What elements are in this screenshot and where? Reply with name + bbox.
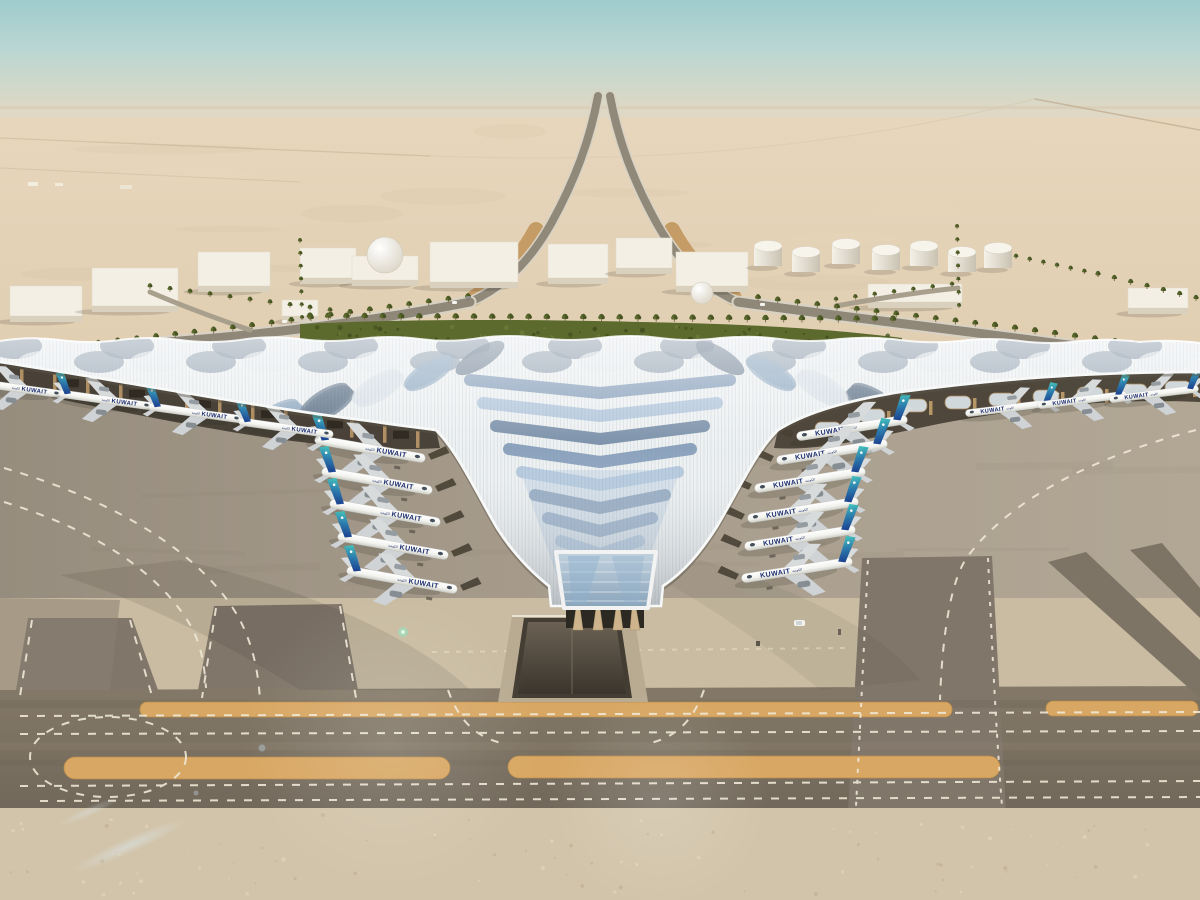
palm-crown	[228, 295, 231, 298]
sand-speckle	[26, 870, 29, 873]
sand-speckle	[942, 879, 944, 881]
sand-speckle	[139, 879, 143, 883]
palm-crown	[288, 319, 291, 322]
sand-speckle	[875, 832, 877, 834]
sand-speckle	[814, 892, 818, 896]
palm-crown	[959, 291, 961, 293]
palm-crown	[150, 285, 153, 288]
palm-crown	[814, 303, 817, 306]
hedge-texture	[579, 331, 581, 333]
hedge-texture	[568, 332, 573, 337]
palm-crown	[1030, 258, 1032, 260]
palm-crown	[795, 301, 798, 304]
palm-crown	[1068, 267, 1070, 269]
palm-crown	[301, 265, 303, 267]
sand-speckle	[833, 828, 835, 830]
palm-crown	[272, 321, 275, 324]
palm-crown	[565, 316, 568, 319]
palm-crown	[298, 239, 300, 241]
palm-crown	[230, 295, 233, 298]
palm-crown	[674, 316, 677, 319]
palm-crown	[389, 305, 392, 308]
palm-crown	[1147, 284, 1150, 287]
hedge-texture	[520, 330, 525, 335]
palm-crown	[780, 317, 783, 320]
palm-crown	[471, 315, 474, 318]
palm-crown	[474, 315, 477, 318]
hedge-texture	[684, 327, 687, 330]
palm-crown	[507, 315, 510, 318]
sand-speckle	[20, 822, 23, 825]
palm-crown	[529, 315, 532, 318]
sand-speckle	[1063, 847, 1065, 849]
palm-crown	[409, 303, 412, 306]
palm-crown	[383, 315, 386, 318]
sand-speckle	[971, 866, 973, 868]
palm-crown	[755, 296, 758, 299]
palm-crown	[489, 315, 492, 318]
palm-crown	[620, 316, 623, 319]
palm-crown	[872, 293, 874, 295]
palm-crown	[148, 285, 151, 288]
palm-crown	[1052, 332, 1055, 335]
desert-patch	[175, 226, 282, 233]
palm-crown	[1027, 258, 1029, 260]
sand-speckle	[136, 872, 138, 874]
palm-crown	[911, 288, 913, 290]
hedge-texture	[597, 334, 600, 337]
palm-crown	[416, 315, 419, 318]
palm-crown	[301, 291, 303, 293]
palm-crown	[190, 290, 193, 293]
palm-crown	[1057, 264, 1059, 266]
palm-crown	[401, 315, 404, 318]
desert-patch	[380, 188, 506, 205]
palm-crown	[406, 303, 409, 306]
palm-crown	[445, 298, 448, 301]
warehouse-building	[430, 242, 518, 282]
warehouse-building	[198, 252, 270, 286]
palm-crown	[1035, 329, 1038, 332]
palm-crown	[836, 298, 838, 300]
palm-crown	[957, 304, 959, 306]
palm-crown	[1114, 276, 1117, 279]
palm-crown	[758, 296, 761, 299]
palm-crown	[955, 238, 957, 240]
palm-crown	[270, 301, 273, 304]
sand-speckle	[219, 843, 220, 844]
palm-crown	[350, 311, 353, 314]
palm-crown	[1177, 292, 1180, 295]
palm-crown	[188, 290, 191, 293]
palm-crown	[1071, 267, 1073, 269]
palm-crown	[871, 317, 874, 320]
palm-crown	[638, 316, 641, 319]
palm-crown	[950, 283, 952, 285]
palm-crown	[311, 316, 314, 319]
palm-crown	[434, 315, 437, 318]
palm-crown	[635, 316, 638, 319]
building-facade	[352, 280, 418, 286]
hedge-texture	[743, 331, 745, 333]
palm-crown	[875, 293, 877, 295]
palm-crown	[802, 317, 805, 320]
palm-crown	[955, 225, 957, 227]
palm-crown	[957, 225, 959, 227]
palm-crown	[957, 291, 959, 293]
palm-crown	[367, 308, 370, 311]
palm-crown	[726, 316, 729, 319]
palm-crown	[916, 315, 919, 318]
palm-crown	[692, 316, 695, 319]
palm-crown	[301, 278, 303, 280]
hedge-texture	[447, 337, 450, 340]
palm-crown	[300, 316, 302, 318]
hedge-texture	[748, 328, 751, 331]
sand-speckle	[554, 857, 556, 859]
palm-crown	[952, 283, 954, 285]
palm-crown	[544, 316, 547, 319]
hedge-texture	[550, 335, 552, 337]
palm-crown	[958, 265, 960, 267]
sand-speckle	[920, 823, 923, 826]
palm-crown	[913, 315, 916, 318]
warehouse-building	[300, 248, 356, 278]
desert-patch	[117, 167, 254, 182]
gate-shadow	[327, 420, 343, 428]
building-facade	[198, 286, 270, 292]
palm-crown	[797, 301, 800, 304]
dome-building	[367, 237, 403, 273]
sand-speckle	[841, 870, 844, 873]
hedge-texture	[337, 325, 342, 330]
gate-shadow	[393, 431, 409, 439]
sand-speckle	[261, 847, 263, 849]
sand-speckle	[102, 893, 106, 897]
palm-crown	[653, 316, 656, 319]
palm-crown	[170, 287, 173, 290]
sand-speckle	[1094, 865, 1098, 869]
sand-speckle	[294, 877, 297, 880]
sand-speckle	[145, 825, 149, 829]
palm-crown	[913, 288, 915, 290]
fuel-tank-top	[832, 239, 860, 250]
palm-crown	[784, 317, 787, 320]
palm-crown	[1072, 334, 1075, 337]
palm-crown	[583, 316, 586, 319]
palm-crown	[894, 291, 896, 293]
hedge-texture	[315, 325, 320, 330]
building-facade	[300, 278, 356, 284]
sand-speckle	[937, 862, 940, 865]
hedge-texture	[785, 331, 787, 333]
hedge-texture	[678, 327, 680, 329]
desert-patch	[951, 129, 1035, 139]
palm-crown	[250, 298, 253, 301]
palm-crown	[958, 278, 960, 280]
warehouse-building	[676, 252, 748, 286]
palm-crown	[1131, 280, 1134, 283]
palm-crown	[1055, 332, 1058, 335]
palm-crown	[386, 305, 389, 308]
hedge-texture	[803, 333, 805, 335]
sand-speckle	[541, 866, 545, 870]
sand-speckle	[1047, 864, 1049, 866]
palm-crown	[893, 317, 896, 320]
palm-crown	[288, 303, 291, 306]
hedge-texture	[373, 325, 377, 329]
palm-crown	[1112, 276, 1115, 279]
palm-crown	[1196, 296, 1199, 299]
hedge-texture	[690, 328, 693, 331]
hedge-texture	[536, 331, 540, 335]
palm-crown	[429, 300, 432, 303]
palm-crown	[601, 316, 604, 319]
palm-crown	[330, 313, 333, 316]
warehouse-building	[282, 300, 318, 316]
palm-crown	[525, 315, 528, 318]
building-facade	[1128, 308, 1188, 314]
sand-speckle	[228, 877, 230, 879]
sand-speckle	[525, 850, 527, 852]
palm-crown	[1144, 284, 1147, 287]
palm-crown	[837, 305, 840, 308]
sand-speckle	[550, 839, 554, 843]
palm-crown	[456, 315, 459, 318]
palm-crown	[300, 252, 302, 254]
palm-crown	[298, 252, 300, 254]
hedge-texture	[696, 335, 700, 339]
palm-crown	[765, 317, 768, 320]
sand-speckle	[935, 890, 937, 892]
sand-speckle	[188, 849, 190, 851]
fuel-tank-top	[754, 241, 782, 252]
hedge-texture	[338, 332, 341, 335]
sand-speckle	[1030, 835, 1032, 837]
palm-crown	[562, 316, 565, 319]
palm-crown	[892, 291, 894, 293]
sand-speckle	[255, 882, 257, 884]
palm-crown	[211, 328, 214, 331]
palm-crown	[1014, 255, 1016, 257]
palm-crown	[778, 298, 781, 301]
palm-crown	[995, 324, 998, 327]
palm-crown	[191, 330, 194, 333]
palm-crown	[1015, 326, 1018, 329]
palm-crown	[249, 324, 252, 327]
building-facade	[548, 278, 608, 284]
warehouse-building	[616, 238, 672, 268]
aerial-rendering-kuwait-airport: KUWAITالكويتيةKUWAITالكويتيةKUWAITالكويت…	[0, 0, 1200, 900]
palm-crown	[890, 317, 893, 320]
palm-crown	[290, 303, 293, 306]
sand-speckle	[744, 890, 746, 892]
palm-crown	[834, 305, 837, 308]
warehouse-building	[1128, 288, 1188, 308]
hedge-texture	[675, 325, 678, 328]
palm-crown	[856, 317, 859, 320]
palm-crown	[510, 315, 513, 318]
palm-crown	[1163, 288, 1166, 291]
sand-speckle	[961, 826, 964, 829]
warehouse-building	[10, 286, 82, 316]
palm-crown	[955, 319, 958, 322]
palm-crown	[729, 316, 732, 319]
palm-crown	[1098, 272, 1101, 275]
hedge-texture	[397, 328, 400, 331]
palm-crown	[817, 303, 820, 306]
palm-crown	[210, 293, 213, 296]
palm-crown	[874, 310, 877, 313]
palm-crown	[252, 324, 255, 327]
palm-crown	[834, 298, 836, 300]
building-facade	[868, 302, 962, 308]
building-facade	[616, 268, 672, 274]
sand-speckle	[245, 892, 248, 895]
palm-crown	[268, 301, 271, 304]
palm-crown	[958, 252, 960, 254]
desert-patch	[73, 144, 261, 154]
palm-crown	[853, 296, 855, 298]
palm-crown	[328, 309, 331, 312]
fuel-tank-top	[792, 247, 820, 258]
palm-crown	[547, 316, 550, 319]
palm-crown	[616, 316, 619, 319]
building-facade	[92, 306, 178, 312]
building-facade	[10, 316, 82, 322]
palm-crown	[492, 315, 495, 318]
palm-crown	[953, 319, 956, 322]
warehouse-building	[548, 244, 608, 278]
palm-crown	[1075, 334, 1078, 337]
palm-crown	[310, 306, 313, 309]
sand-speckle	[566, 874, 568, 876]
hedge-texture	[532, 333, 535, 336]
sand-speckle	[233, 862, 234, 863]
sand-speckle	[132, 892, 135, 895]
palm-crown	[1082, 270, 1084, 272]
sand-speckle	[581, 884, 585, 888]
palm-crown	[168, 287, 171, 290]
palm-crown	[1043, 261, 1045, 263]
palm-crown	[853, 317, 856, 320]
sand-speckle	[478, 880, 480, 882]
palm-crown	[817, 317, 820, 320]
sand-speckle	[119, 882, 122, 885]
palm-crown	[957, 238, 959, 240]
palm-crown	[365, 315, 368, 318]
sand-speckle	[959, 891, 962, 894]
desert-patch	[873, 206, 961, 216]
palm-crown	[956, 265, 958, 267]
palm-crown	[775, 298, 778, 301]
palm-crown	[299, 265, 301, 267]
palm-crown	[1095, 272, 1098, 275]
palm-crown	[1032, 329, 1035, 332]
palm-crown	[747, 317, 750, 320]
sand-speckle	[22, 828, 25, 831]
desert-patch	[563, 188, 688, 197]
sand-speckle	[275, 860, 277, 862]
pavement-streak	[897, 548, 1069, 551]
palm-crown	[172, 333, 175, 336]
palm-crown	[1084, 270, 1086, 272]
palm-crown	[175, 333, 178, 336]
hedge-texture	[384, 332, 386, 334]
palm-crown	[956, 252, 958, 254]
palm-crown	[799, 317, 802, 320]
sand-speckle	[12, 829, 15, 832]
gate-shadow	[129, 390, 145, 398]
palm-crown	[762, 317, 765, 320]
palm-crown	[711, 316, 714, 319]
fuel-tank-top	[948, 247, 976, 258]
palm-crown	[876, 310, 879, 313]
palm-crown	[302, 303, 304, 305]
hedge-texture	[485, 334, 487, 336]
sand-speckle	[1003, 866, 1007, 870]
palm-crown	[1016, 255, 1018, 257]
palm-crown	[671, 316, 674, 319]
palm-crown	[896, 312, 899, 315]
hedge-texture	[378, 327, 383, 332]
hedge-texture	[724, 330, 726, 332]
palm-crown	[426, 300, 429, 303]
sand-speckle	[877, 858, 879, 860]
fuel-tank-top	[984, 243, 1012, 254]
desert-patch	[474, 124, 546, 139]
palm-crown	[419, 315, 422, 318]
palm-crown	[208, 293, 211, 296]
canopy-column	[929, 401, 933, 415]
palm-crown	[992, 324, 995, 327]
palm-crown	[448, 298, 451, 301]
hedge-texture	[355, 334, 358, 337]
palm-crown	[1193, 296, 1196, 299]
palm-crown	[975, 322, 978, 325]
palm-crown	[214, 328, 217, 331]
palm-crown	[656, 316, 659, 319]
sand-speckle	[849, 831, 851, 833]
sand-speckle	[493, 853, 496, 856]
palm-crown	[854, 308, 857, 311]
palm-crown	[300, 239, 302, 241]
palm-crown	[1055, 264, 1057, 266]
palm-crown	[346, 314, 349, 317]
terminal-tip-facade	[556, 552, 656, 630]
palm-crown	[380, 315, 383, 318]
sand-speckle	[105, 824, 109, 828]
hedge-texture	[360, 328, 362, 330]
sand-speckle	[1083, 835, 1087, 839]
sand-speckle	[1012, 829, 1014, 831]
desert-patch	[301, 205, 402, 223]
sand-speckle	[10, 871, 12, 873]
palm-crown	[361, 315, 364, 318]
palm-crown	[933, 286, 935, 288]
hedge-texture	[640, 328, 645, 333]
hedge-texture	[450, 325, 454, 329]
palm-crown	[302, 316, 304, 318]
canopy-column	[383, 426, 387, 443]
palm-crown	[972, 322, 975, 325]
palm-crown	[1041, 261, 1043, 263]
sand-speckle	[1071, 837, 1072, 838]
sand-speckle	[1087, 829, 1090, 832]
palm-crown	[1012, 326, 1015, 329]
building-facade	[430, 282, 518, 288]
sand-speckle	[1006, 871, 1007, 872]
